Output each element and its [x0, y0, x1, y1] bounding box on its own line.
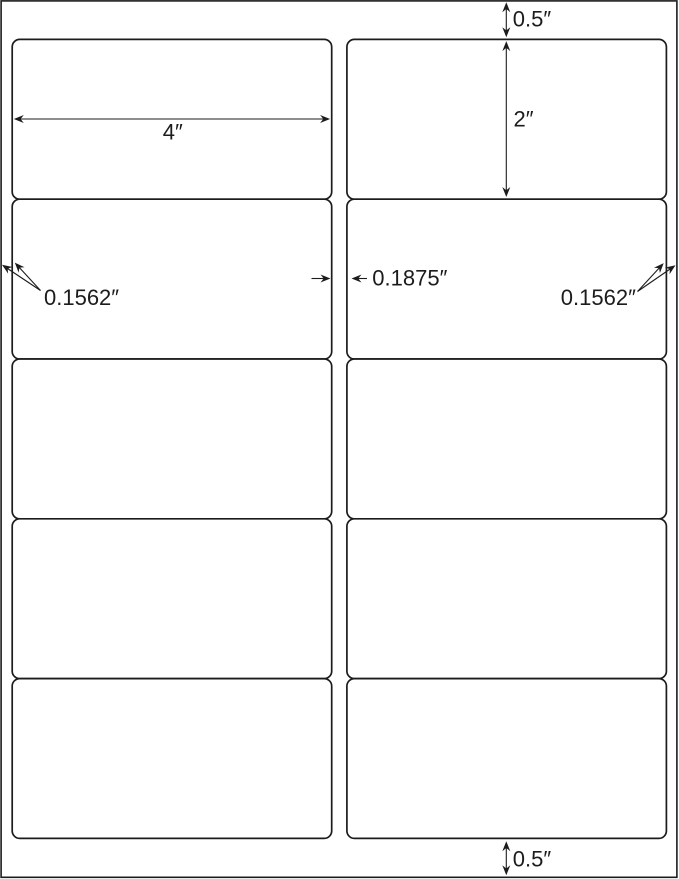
- svg-text:0.1562″: 0.1562″: [561, 285, 636, 310]
- svg-text:0.1875″: 0.1875″: [372, 265, 447, 290]
- svg-text:0.5″: 0.5″: [513, 846, 552, 871]
- svg-text:0.5″: 0.5″: [513, 7, 552, 32]
- svg-text:2″: 2″: [514, 106, 534, 131]
- svg-text:0.1562″: 0.1562″: [44, 285, 119, 310]
- svg-text:4″: 4″: [163, 120, 183, 145]
